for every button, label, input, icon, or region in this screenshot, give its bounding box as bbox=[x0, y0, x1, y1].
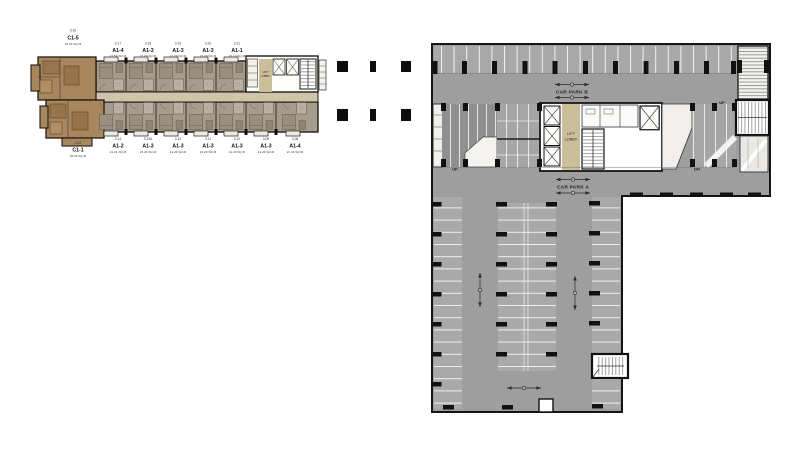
unit-area: 21.29 SQ.M bbox=[258, 150, 275, 154]
lift-shaft-icon bbox=[640, 106, 659, 130]
unit-area: 21.29 SQ.M bbox=[229, 150, 246, 154]
unit-type: A1-3 bbox=[260, 144, 271, 150]
unit-area: 21.29 SQ.M bbox=[170, 150, 187, 154]
unit-number: 3-19 bbox=[175, 42, 182, 46]
unit-area: 21.42 SQ.M bbox=[287, 150, 304, 154]
unit-area: 45.54 SQ.M bbox=[65, 42, 82, 46]
side-room bbox=[433, 104, 443, 167]
unit-area: 21.29 SQ.M bbox=[200, 54, 217, 58]
unit-type: A1-3 bbox=[142, 144, 153, 150]
car-park-a-label: CAR PARK A bbox=[557, 185, 589, 191]
unit-label: 3-16 C1-5 45.54 SQ.M bbox=[65, 29, 82, 47]
top-unit-labels: 3-16 C1-5 45.54 SQ.M 3-17 A1-4 21.59 SQ.… bbox=[65, 29, 246, 59]
unit-type: A1-3 bbox=[202, 144, 213, 150]
match-line-dashes bbox=[337, 61, 411, 121]
unit-number: 3-13A bbox=[144, 137, 153, 141]
stall-block-center bbox=[498, 203, 556, 371]
unit-label: 3-10 A1-3 21.29 SQ.M bbox=[229, 137, 246, 154]
residential-wing-plan: LIFT LOBBY bbox=[31, 29, 326, 159]
unit-type: A1-3 bbox=[231, 144, 242, 150]
stair-icon bbox=[592, 354, 628, 378]
unit-number: 3-11 bbox=[205, 137, 211, 141]
unit-label: 3-08 A1-4 21.42 SQ.M bbox=[287, 137, 304, 154]
unit-type: A1-4 bbox=[289, 144, 300, 150]
lift-shaft-icon bbox=[544, 106, 560, 125]
unit-C1-1 bbox=[40, 100, 104, 146]
unit-area: 21.59 SQ.M bbox=[110, 54, 127, 58]
lift-shaft-icon bbox=[544, 147, 560, 166]
corridor bbox=[96, 92, 318, 102]
up-left-label: UP bbox=[452, 167, 458, 172]
unit-label: 3-14 A1-2 21.21 SQ.M bbox=[110, 137, 127, 154]
unit-number: 3-20 bbox=[205, 42, 212, 46]
unit-area: 21.29 SQ.M bbox=[170, 54, 187, 58]
unit-area: 21.19 SQ.M bbox=[229, 54, 246, 58]
car-park-core: LIFT LOBBY bbox=[540, 103, 662, 171]
unit-label: 3-11 A1-3 21.29 SQ.M bbox=[200, 137, 217, 154]
unit-label: 3-19 A1-3 21.29 SQ.M bbox=[170, 42, 187, 59]
residential-core: LIFT LOBBY bbox=[246, 56, 318, 92]
dn-right-label: DN bbox=[694, 167, 700, 172]
unit-number: 3-09 bbox=[263, 137, 270, 141]
unit-label: 3-21 A1-1 21.19 SQ.M bbox=[229, 42, 246, 59]
bottom-unit-labels: 3-15 C1-1 45.22 SQ.M 3-14 A1-2 21.21 SQ.… bbox=[70, 137, 304, 158]
lift-lobby-label-line2: LOBBY bbox=[261, 74, 271, 78]
service-rooms bbox=[582, 105, 638, 127]
storage-grid bbox=[497, 104, 540, 168]
unit-type: C1-1 bbox=[72, 148, 83, 154]
car-park-plan: CAR PARK B LIFT LOBBY bbox=[432, 44, 770, 412]
unit-label: 3-12 A1-3 21.29 SQ.M bbox=[170, 137, 187, 154]
unit-label: 3-18 A1-3 21.29 SQ.M bbox=[140, 42, 157, 59]
floor-plan-sheet: LIFT LOBBY bbox=[0, 0, 800, 450]
unit-type: A1-3 bbox=[172, 144, 183, 150]
unit-label: 3-20 A1-3 21.29 SQ.M bbox=[200, 42, 217, 59]
unit-type: A1-2 bbox=[112, 144, 123, 150]
unit-area: 21.29 SQ.M bbox=[140, 54, 157, 58]
up-ramp-label: UP bbox=[719, 100, 725, 105]
unit-area: 21.29 SQ.M bbox=[200, 150, 217, 154]
unit-number: 3-12 bbox=[175, 137, 182, 141]
unit-number: 3-18 bbox=[145, 42, 152, 46]
unit-number: 3-14 bbox=[115, 137, 122, 141]
stall-column-left bbox=[434, 197, 462, 409]
lift-shaft-icon bbox=[287, 59, 299, 75]
unit-label: 3-13A A1-3 21.29 SQ.M bbox=[140, 137, 157, 154]
lift-lobby-label-line1: LIFT bbox=[567, 132, 575, 136]
car-park-b-label: CAR PARK B bbox=[556, 90, 589, 96]
unit-C1-5 bbox=[31, 57, 96, 100]
unit-label: 3-09 A1-3 21.29 SQ.M bbox=[258, 137, 275, 154]
unit-number: 3-15 bbox=[75, 141, 82, 145]
stair-icon bbox=[736, 100, 769, 135]
lift-shaft-icon bbox=[544, 127, 560, 146]
ramp-lower bbox=[740, 136, 768, 172]
unit-area: 21.21 SQ.M bbox=[110, 150, 127, 154]
lift-lobby-label-line2: LOBBY bbox=[565, 138, 578, 142]
unit-number: 3-17 bbox=[115, 42, 122, 46]
unit-number: 3-10 bbox=[234, 137, 241, 141]
unit-number: 3-21 bbox=[234, 42, 241, 46]
unit-area: 45.22 SQ.M bbox=[70, 154, 87, 158]
floor-plan-drawing: LIFT LOBBY bbox=[0, 0, 800, 450]
unit-type: C1-5 bbox=[67, 36, 78, 42]
end-balcony-hatch bbox=[319, 60, 326, 90]
exit-notch bbox=[539, 399, 553, 412]
unit-label: 3-17 A1-4 21.59 SQ.M bbox=[110, 42, 127, 59]
unit-number: 3-16 bbox=[70, 29, 77, 33]
unit-number: 3-08 bbox=[292, 137, 299, 141]
unit-area: 21.29 SQ.M bbox=[140, 150, 157, 154]
ramp-up bbox=[737, 46, 769, 99]
stair-icon bbox=[582, 129, 604, 169]
lift-shaft-icon bbox=[273, 59, 285, 75]
